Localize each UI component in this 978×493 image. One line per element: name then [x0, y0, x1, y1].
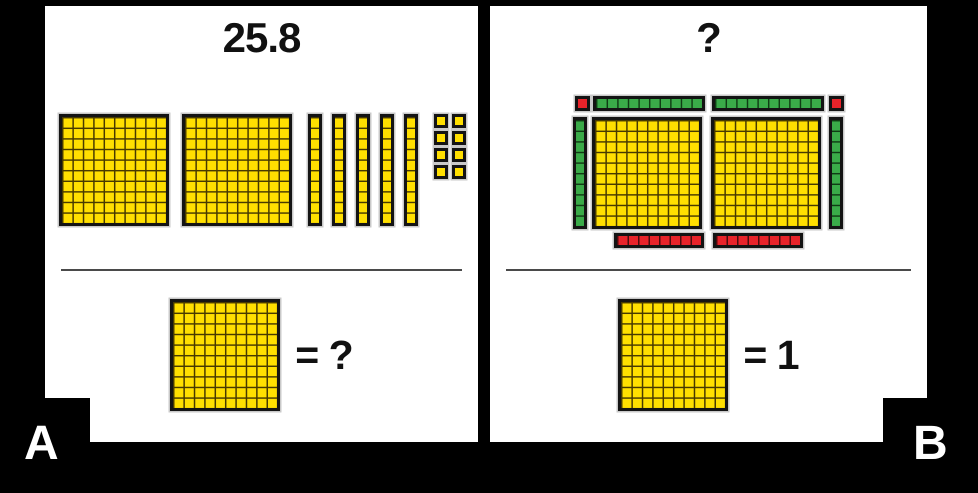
ones-flat — [711, 117, 821, 229]
ones-unit — [434, 114, 448, 128]
panel-b-legend-flat — [618, 299, 728, 411]
ones-unit — [434, 131, 448, 145]
panel-a-legend-label: = ? — [295, 332, 352, 379]
hundreds-flat — [182, 114, 292, 226]
green-rod-side — [829, 117, 843, 229]
corner-label-b: B — [883, 398, 978, 493]
corner-letter-b: B — [913, 420, 978, 468]
panel-a-blocks — [59, 114, 466, 226]
red-corner-unit — [829, 96, 844, 111]
panel-b-legend-label: = 1 — [743, 332, 798, 379]
tens-rod — [404, 114, 418, 226]
panel-b-frame — [573, 96, 844, 248]
tens-rod-group — [308, 114, 418, 226]
red-unit-strip — [614, 233, 704, 248]
ones-unit — [452, 165, 466, 179]
ones-unit — [434, 148, 448, 162]
stage: 25.8 = ? ? = 1 A B — [0, 0, 978, 493]
panel-a-legend-flat — [170, 299, 280, 411]
green-rod-side — [573, 117, 587, 229]
tens-rod — [332, 114, 346, 226]
tens-rod — [308, 114, 322, 226]
green-rod-top — [593, 96, 705, 111]
panel-a-legend: = ? — [45, 299, 478, 411]
corner-label-a: A — [0, 398, 90, 493]
ones-unit — [452, 114, 466, 128]
red-unit-strip — [713, 233, 803, 248]
panel-b-divider — [506, 269, 911, 271]
panel-b: ? = 1 — [490, 6, 927, 442]
panel-a: 25.8 = ? — [45, 6, 478, 442]
tens-rod — [380, 114, 394, 226]
ones-unit-group — [434, 114, 466, 179]
panel-a-divider — [61, 269, 462, 271]
hundreds-flat — [59, 114, 169, 226]
green-rod-top — [712, 96, 824, 111]
ones-unit — [452, 148, 466, 162]
panel-b-title: ? — [490, 14, 927, 62]
ones-flat — [592, 117, 702, 229]
tens-rod — [356, 114, 370, 226]
ones-unit — [452, 131, 466, 145]
ones-unit — [434, 165, 448, 179]
panel-b-legend: = 1 — [490, 299, 927, 411]
corner-letter-a: A — [24, 420, 90, 468]
red-corner-unit — [575, 96, 590, 111]
panel-a-title: 25.8 — [45, 14, 478, 62]
